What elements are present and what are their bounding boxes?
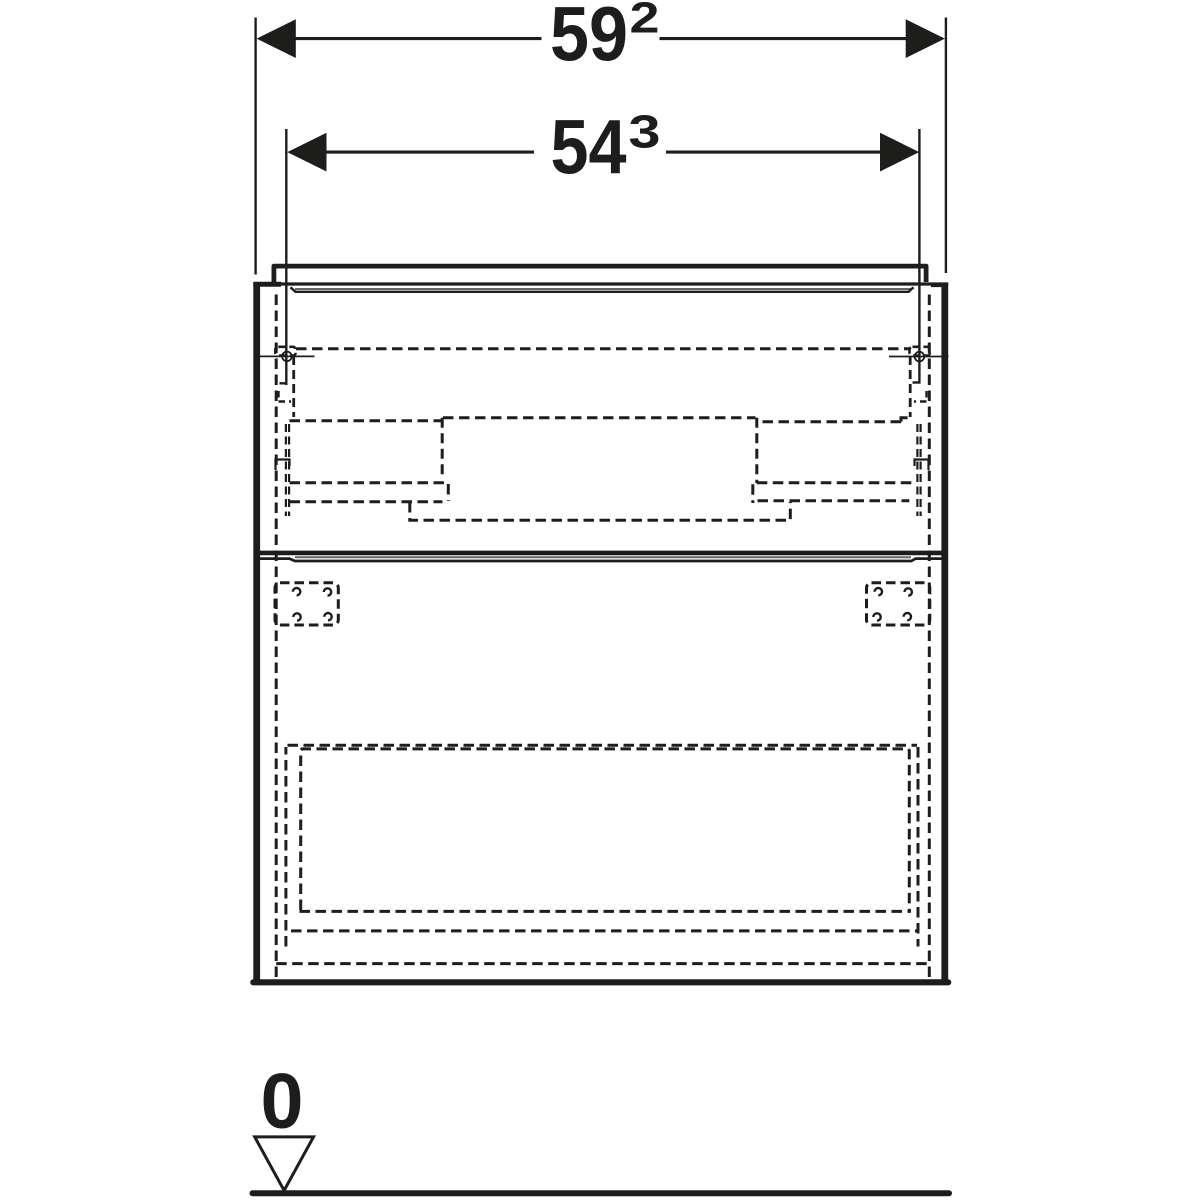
- svg-text:0: 0: [261, 1057, 304, 1145]
- svg-text:59: 59: [550, 0, 628, 78]
- svg-text:54: 54: [551, 105, 627, 191]
- svg-text:3: 3: [629, 106, 661, 158]
- svg-text:2: 2: [630, 0, 660, 43]
